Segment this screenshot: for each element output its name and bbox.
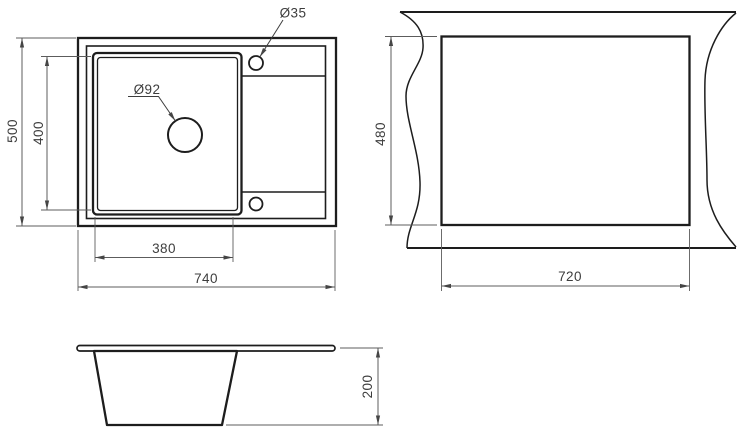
label-drain-hole-diameter: Ø92 <box>134 82 161 97</box>
cutout-view: 480 720 <box>373 12 736 291</box>
dim-text-overall-width: 740 <box>194 271 218 286</box>
dim-text-bowl-width: 380 <box>152 241 176 256</box>
leader-drain-hole <box>128 97 175 122</box>
tap-hole-bottom <box>250 198 263 211</box>
dim-text-bowl-height: 200 <box>360 375 375 399</box>
side-view: 200 <box>77 346 383 426</box>
break-line-right <box>705 13 736 247</box>
drawing-sheet: 500 400 380 740 Ø35 Ø92 480 720 200 <box>0 0 748 433</box>
dim-text-overall-depth: 500 <box>5 119 20 143</box>
cutout-rectangle <box>442 37 690 226</box>
break-line-left <box>400 12 423 248</box>
bowl-profile <box>94 351 237 425</box>
label-tap-hole-diameter: Ø35 <box>280 6 307 21</box>
drain-hole <box>168 118 202 152</box>
dim-text-cutout-width: 720 <box>558 269 582 284</box>
dim-text-bowl-depth: 400 <box>31 121 46 145</box>
tap-hole-top <box>249 56 263 70</box>
sink-outer-edge <box>78 38 336 226</box>
sink-technical-drawing: 500 400 380 740 Ø35 Ø92 480 720 200 <box>0 0 748 433</box>
top-view: 500 400 380 740 Ø35 Ø92 <box>5 6 336 292</box>
dim-text-cutout-depth: 480 <box>373 122 388 146</box>
